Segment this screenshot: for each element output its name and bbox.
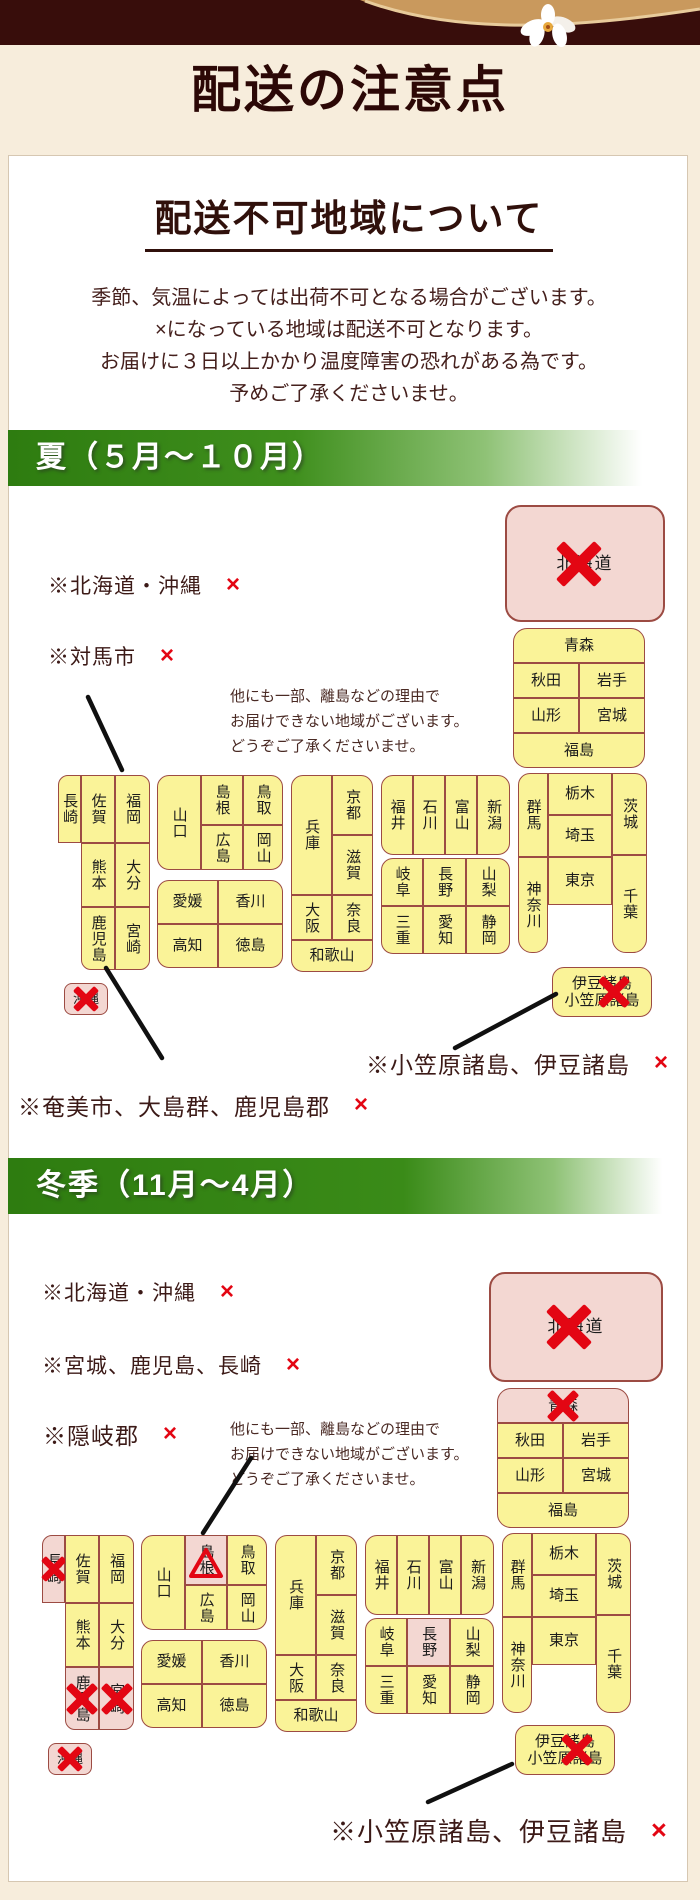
winter-label-hokkaido-okinawa: ※北海道・沖縄 ×: [42, 1277, 235, 1307]
pref-osaka: 大阪: [275, 1655, 316, 1700]
pref-toyama: 富山: [445, 775, 477, 855]
pref-nagasaki: 長崎: [42, 1535, 65, 1603]
pref-saga: 佐賀: [81, 775, 115, 843]
pref-yamaguchi: 山口: [157, 775, 201, 870]
x-text-mark: ×: [160, 642, 175, 670]
intro-line: お届けに３日以上かかり温度障害の恐れがある為です。: [8, 346, 690, 378]
winter-note: 他にも一部、離島などの理由で お届けできない地域がございます。 どうぞご了承くだ…: [230, 1417, 469, 1492]
pref-ibaraki: 茨城: [596, 1533, 631, 1615]
pref-tokushima: 徳島: [202, 1684, 267, 1728]
pref-tottori: 鳥取: [243, 775, 283, 825]
pref-akita: 秋田: [513, 663, 579, 698]
pref-shiga: 滋賀: [316, 1595, 357, 1655]
pref-kagoshima: 鹿児島: [81, 907, 115, 970]
pref-hokkaido: 北海道: [505, 505, 665, 622]
pref-yamagata: 山形: [513, 698, 579, 733]
x-text-mark: ×: [654, 1049, 669, 1077]
pref-okayama: 岡山: [243, 825, 283, 870]
pref-gifu: 岐阜: [381, 858, 423, 906]
pref-kochi: 高知: [157, 924, 218, 968]
delivery-notice-page: 配送の注意点 配送不可地域について 季節、気温によっては出荷不可となる場合がござ…: [0, 0, 700, 1900]
winter-label-okigun: ※隠岐郡 ×: [43, 1417, 178, 1451]
intro-line: 季節、気温によっては出荷不可となる場合がございます。: [8, 282, 690, 314]
pref-fukuoka: 福岡: [115, 775, 150, 843]
pref-yamanashi: 山梨: [466, 858, 510, 906]
pref-iwate: 岩手: [579, 663, 645, 698]
pref-kochi: 高知: [141, 1684, 202, 1728]
winter-label-ogasawara-izu: ※小笠原諸島、伊豆諸島 ×: [330, 1812, 668, 1849]
pref-oita: 大分: [115, 843, 150, 907]
pref-fukushima: 福島: [513, 733, 645, 768]
pref-miyazaki: 宮崎: [99, 1667, 134, 1730]
x-text-mark: ×: [286, 1351, 301, 1379]
pref-tochigi: 栃木: [548, 773, 612, 815]
pref-shimane: 島根: [201, 775, 243, 825]
pref-kagoshima: 鹿児島: [65, 1667, 99, 1730]
pref-shiga: 滋賀: [332, 835, 373, 895]
pref-okayama: 岡山: [227, 1585, 267, 1630]
winter-banner: 冬季（11月～4月）: [8, 1158, 690, 1214]
pref-aomori: 青森: [513, 628, 645, 663]
pref-miyagi: 宮城: [579, 698, 645, 733]
pref-fukuoka: 福岡: [99, 1535, 134, 1603]
pref-shizuoka: 静岡: [450, 1666, 494, 1714]
x-text-mark: ×: [354, 1091, 369, 1119]
winter-label-miyagi-kagoshima-nagasaki: ※宮城、鹿児島、長崎 ×: [42, 1350, 301, 1380]
pref-tokyo: 東京: [548, 857, 612, 905]
pref-ishikawa: 石川: [397, 1535, 429, 1615]
pref-shizuoka: 静岡: [466, 906, 510, 954]
pref-toyama: 富山: [429, 1535, 461, 1615]
pref-chiba: 千葉: [596, 1615, 631, 1713]
pref-okinawa: 沖縄: [48, 1743, 92, 1775]
pref-hokkaido: 北海道: [489, 1272, 663, 1382]
pref-kanagawa: 神奈川: [502, 1617, 532, 1713]
page-title: 配送の注意点: [0, 50, 700, 122]
pref-hyogo: 兵庫: [275, 1535, 316, 1655]
pref-hiroshima: 広島: [185, 1585, 227, 1630]
pref-tokushima: 徳島: [218, 924, 283, 968]
card-heading: 配送不可地域について: [8, 188, 690, 252]
pref-nagano: 長野: [407, 1618, 450, 1666]
pref-aichi: 愛知: [423, 906, 466, 954]
pref-kumamoto: 熊本: [81, 843, 115, 907]
pref-kumamoto: 熊本: [65, 1603, 99, 1667]
pref-gunma: 群馬: [518, 773, 548, 857]
pref-akita: 秋田: [497, 1423, 563, 1458]
pref-iwate: 岩手: [563, 1423, 629, 1458]
pref-yamaguchi: 山口: [141, 1535, 185, 1630]
summer-label-ogasawara-izu: ※小笠原諸島、伊豆諸島 ×: [366, 1046, 669, 1080]
pref-aichi: 愛知: [407, 1666, 450, 1714]
summer-label-tsushima: ※対馬市 ×: [48, 641, 175, 671]
pref-saitama: 埼玉: [548, 815, 612, 857]
pref-kyoto: 京都: [316, 1535, 357, 1595]
pref-kyoto: 京都: [332, 775, 373, 835]
pref-miyazaki: 宮崎: [115, 907, 150, 970]
pref-nara: 奈良: [332, 895, 373, 940]
pref-aomori: 青森: [497, 1388, 629, 1423]
pref-fukui: 福井: [381, 775, 413, 855]
pref-saga: 佐賀: [65, 1535, 99, 1603]
pref-yamagata: 山形: [497, 1458, 563, 1493]
summer-label-amami: ※奄美市、大島群、鹿児島郡 ×: [18, 1088, 369, 1122]
pref-hiroshima: 広島: [201, 825, 243, 870]
pref-saitama: 埼玉: [532, 1575, 596, 1617]
intro-paragraph: 季節、気温によっては出荷不可となる場合がございます。 ×になっている地域は配送不…: [8, 282, 690, 410]
pref-nagasaki: 長崎: [58, 775, 81, 843]
pref-osaka: 大阪: [291, 895, 332, 940]
izu-ogasawara-box: 伊豆諸島 小笠原諸島: [552, 967, 652, 1017]
pref-ehime: 愛媛: [157, 880, 218, 924]
summer-label-hokkaido-okinawa: ※北海道・沖縄 ×: [48, 570, 241, 600]
triangle-mark-icon: [188, 1547, 224, 1579]
izu-ogasawara-box: 伊豆諸島 小笠原諸島: [515, 1725, 615, 1775]
pref-yamanashi: 山梨: [450, 1618, 494, 1666]
x-text-mark: ×: [220, 1278, 235, 1306]
pref-hyogo: 兵庫: [291, 775, 332, 895]
summer-banner: 夏（５月～１０月）: [8, 430, 690, 486]
summer-note: 他にも一部、離島などの理由で お届けできない地域がございます。 どうぞご了承くだ…: [230, 684, 469, 759]
pref-mie: 三重: [381, 906, 423, 954]
pref-fukushima: 福島: [497, 1493, 629, 1528]
pref-shimane: 島根: [185, 1535, 227, 1585]
pref-mie: 三重: [365, 1666, 407, 1714]
intro-line: ×になっている地域は配送不可となります。: [8, 314, 690, 346]
pref-gunma: 群馬: [502, 1533, 532, 1617]
pref-oita: 大分: [99, 1603, 134, 1667]
pref-tokyo: 東京: [532, 1617, 596, 1665]
pref-nara: 奈良: [316, 1655, 357, 1700]
intro-line: 予めご了承くださいませ。: [8, 378, 690, 410]
pref-gifu: 岐阜: [365, 1618, 407, 1666]
pref-tottori: 鳥取: [227, 1535, 267, 1585]
pref-ibaraki: 茨城: [612, 773, 647, 855]
pref-fukui: 福井: [365, 1535, 397, 1615]
x-text-mark: ×: [163, 1420, 178, 1448]
pref-miyagi: 宮城: [563, 1458, 629, 1493]
pref-okinawa: 沖縄: [64, 983, 108, 1015]
pref-chiba: 千葉: [612, 855, 647, 953]
pref-ishikawa: 石川: [413, 775, 445, 855]
pref-wakayama: 和歌山: [291, 940, 373, 972]
pref-ehime: 愛媛: [141, 1640, 202, 1684]
pref-kagawa: 香川: [202, 1640, 267, 1684]
pref-kagawa: 香川: [218, 880, 283, 924]
pref-wakayama: 和歌山: [275, 1700, 357, 1732]
pref-nagano: 長野: [423, 858, 466, 906]
x-text-mark: ×: [651, 1815, 668, 1846]
pref-tochigi: 栃木: [532, 1533, 596, 1575]
pref-niigata: 新潟: [461, 1535, 494, 1615]
x-text-mark: ×: [226, 571, 241, 599]
pref-kanagawa: 神奈川: [518, 857, 548, 953]
pref-niigata: 新潟: [477, 775, 510, 855]
